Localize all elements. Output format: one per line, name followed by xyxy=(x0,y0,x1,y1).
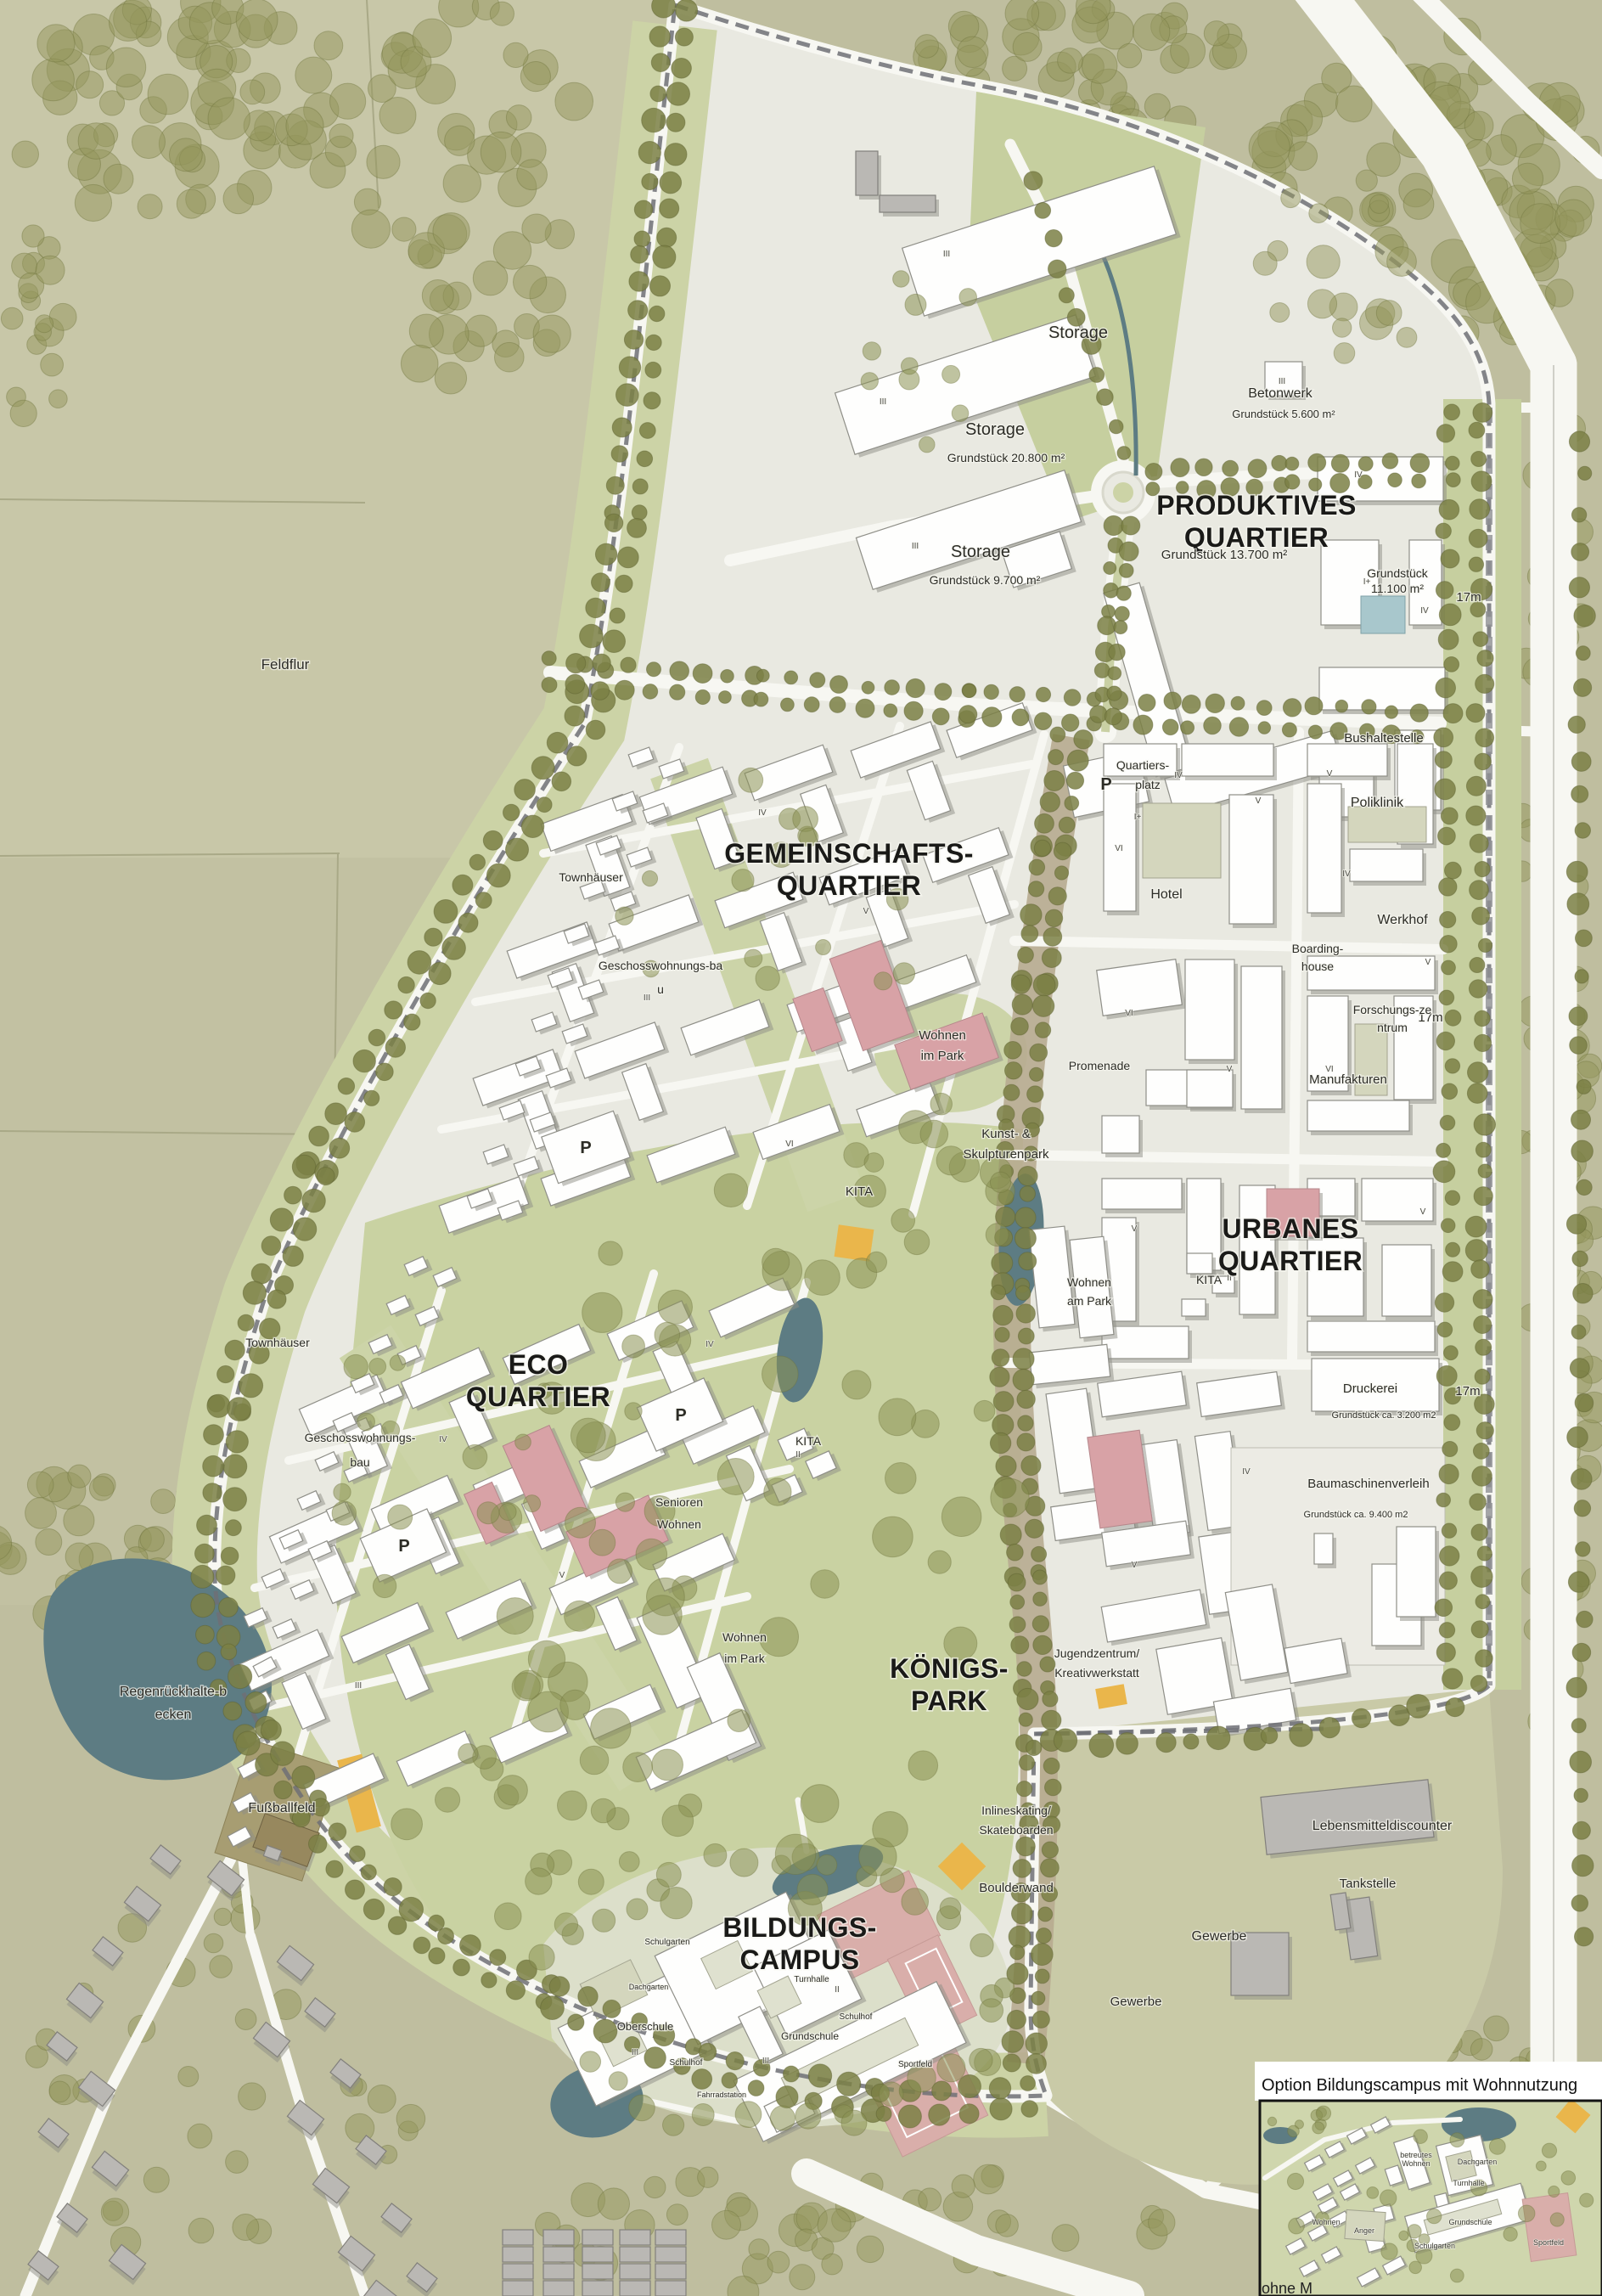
inset-label-wohnen: Wohnen xyxy=(1312,2218,1340,2226)
label-grundstueck-5600: Grundstück 5.600 m² xyxy=(1232,408,1335,420)
label-tankstelle: Tankstelle xyxy=(1340,1877,1397,1891)
label-oberschule: Oberschule xyxy=(617,2020,673,2033)
label-kita-eco: KITA xyxy=(795,1434,822,1448)
label-kita-gemeinschafts: KITA xyxy=(846,1185,873,1199)
label-boulderwand: Boulderwand xyxy=(979,1881,1054,1895)
label-regenbecken-2: ecken xyxy=(155,1708,192,1722)
label-jugendzentrum-2: Kreativwerkstatt xyxy=(1054,1666,1139,1680)
building xyxy=(1361,596,1405,633)
label-grundstueck-3200: Grundstück ca. 3.200 m2 xyxy=(1332,1410,1436,1421)
building xyxy=(1102,1116,1143,1157)
inset-scale-note: ohne M xyxy=(1262,2280,1313,2296)
inset-label-schulgarten: Schulgarten xyxy=(1414,2242,1455,2250)
floor-label: V xyxy=(1256,796,1262,806)
masterplan-map: IIIIIIIIIIIIIVIVIVIVVVVIVVIVIVIVVIIIVIVV… xyxy=(0,0,1602,2296)
label-grundstueck-11100-2: 11.100 m² xyxy=(1371,582,1424,595)
label-schulhof-2: Schulhof xyxy=(840,2012,873,2022)
label-druckerei: Druckerei xyxy=(1343,1382,1397,1396)
label-schulhof-1: Schulhof xyxy=(670,2058,703,2068)
floor-label: IV xyxy=(758,808,767,818)
floor-label: III xyxy=(912,542,919,551)
label-schulgarten: Schulgarten xyxy=(644,1938,689,1947)
label-inlineskating-2: Skateboarden xyxy=(979,1823,1053,1837)
floor-label: III xyxy=(943,250,950,259)
floor-label: II xyxy=(795,1450,801,1460)
building xyxy=(1446,2151,1476,2181)
label-geschosswohnungsbau-e-2: bau xyxy=(350,1455,369,1469)
label-geschosswohnungsbau-g-2: u xyxy=(657,982,664,996)
building xyxy=(1345,2209,1386,2241)
floor-label: V xyxy=(1327,769,1333,779)
building xyxy=(856,151,881,200)
label-kunstpark-1: Kunst- & xyxy=(981,1127,1031,1141)
building xyxy=(880,195,939,217)
floor-label: V xyxy=(1132,1561,1138,1570)
inset-label-grundschule: Grundschule xyxy=(1448,2218,1492,2226)
label-forschungszentrum-1: Forschungs-ze xyxy=(1353,1003,1432,1016)
label-grundstueck-13700: Grundstück 13.700 m² xyxy=(1161,548,1287,562)
label-feldflur: Feldflur xyxy=(261,656,310,672)
building xyxy=(1307,744,1391,780)
inset-option-bildungscampus: Option Bildungscampus mit Wohnnutzung be… xyxy=(1255,2062,1602,2296)
title-eco-1: ECO xyxy=(509,1349,569,1380)
building xyxy=(1307,1100,1413,1135)
floor-label: III xyxy=(644,993,650,1003)
inset-label-anger: Anger xyxy=(1354,2226,1374,2235)
inset-label-turnhalle: Turnhalle xyxy=(1453,2179,1484,2187)
label-kita-urbanes: KITA xyxy=(1196,1273,1223,1286)
label-quartiersplatz-1: Quartiers- xyxy=(1116,758,1170,772)
title-bildungscampus-2: CAMPUS xyxy=(739,1944,859,1975)
building xyxy=(1397,1527,1439,1621)
label-wohnen-am-park-1: Wohnen xyxy=(1067,1275,1111,1289)
building xyxy=(1362,1179,1436,1225)
label-werkhof: Werkhof xyxy=(1377,913,1428,927)
label-dachgarten: Dachgarten xyxy=(629,1983,669,1991)
floor-label: IV xyxy=(1174,771,1183,780)
building xyxy=(1102,1179,1185,1213)
building xyxy=(1241,966,1285,1113)
label-lebensmitteldiscounter: Lebensmitteldiscounter xyxy=(1313,1819,1453,1833)
building xyxy=(1229,795,1277,928)
floor-label: IV xyxy=(1420,606,1429,616)
label-bushaltestelle: Bushaltestelle xyxy=(1344,731,1423,746)
label-senioren-2: Wohnen xyxy=(657,1517,701,1531)
floor-label: IV xyxy=(1242,1467,1251,1477)
floor-label: III xyxy=(762,2057,769,2066)
label-kunstpark-2: Skulpturenpark xyxy=(964,1147,1049,1162)
label-gewerbe-1: Gewerbe xyxy=(1192,1929,1247,1944)
label-parking-4: P xyxy=(398,1537,409,1556)
title-gemeinschafts-1: GEMEINSCHAFTS- xyxy=(724,838,974,869)
floor-label: III xyxy=(880,397,886,407)
building xyxy=(1143,803,1221,878)
building xyxy=(1522,2193,1577,2262)
floor-label: V xyxy=(863,907,869,916)
label-17m-1: 17m xyxy=(1456,590,1481,605)
floor-label: III xyxy=(355,1681,362,1691)
label-wohnen-am-park-2: am Park xyxy=(1067,1294,1112,1308)
label-grundstueck-9400: Grundstück ca. 9.400 m2 xyxy=(1304,1510,1408,1520)
label-boardinghouse-2: house xyxy=(1301,959,1334,973)
floor-label: VI xyxy=(1125,1009,1133,1018)
building xyxy=(1382,1245,1435,1320)
label-parking-3: P xyxy=(675,1406,686,1425)
floor-label: VI xyxy=(1115,844,1122,853)
label-quartiersplatz-2: platz xyxy=(1135,778,1161,791)
label-jugendzentrum-1: Jugendzentrum/ xyxy=(1054,1646,1140,1660)
title-koenigspark-1: KÖNIGS- xyxy=(890,1653,1009,1684)
floor-label: V xyxy=(1132,1224,1138,1234)
title-gemeinschafts-2: QUARTIER xyxy=(777,870,921,901)
label-senioren-1: Senioren xyxy=(655,1495,703,1509)
label-gewerbe-2: Gewerbe xyxy=(1110,1995,1162,2009)
label-wohnen-im-park-2a: Wohnen xyxy=(722,1630,767,1644)
label-forschungszentrum-2: ntrum xyxy=(1377,1021,1408,1034)
label-fussballfeld: Fußballfeld xyxy=(248,1801,315,1815)
floor-label: IV xyxy=(1354,470,1363,480)
label-grundstueck-20800: Grundstück 20.800 m² xyxy=(947,451,1065,464)
label-storage-1: Storage xyxy=(1048,324,1108,342)
building xyxy=(1187,1070,1236,1111)
label-geschosswohnungsbau-e-1: Geschosswohnungs- xyxy=(305,1431,416,1444)
label-regenbecken-1: Regenrückhalte-b xyxy=(120,1685,227,1699)
label-poliklinik: Poliklinik xyxy=(1351,796,1404,810)
label-geschosswohnungsbau-g-1: Geschosswohnungs-ba xyxy=(599,959,723,972)
label-17m-3: 17m xyxy=(1455,1384,1480,1398)
building xyxy=(1182,744,1277,780)
label-hotel: Hotel xyxy=(1150,887,1182,902)
floor-label: IV xyxy=(705,1340,714,1349)
building xyxy=(1182,1299,1209,1320)
floor-label: V xyxy=(1227,1065,1233,1074)
title-urbanes-1: URBANES xyxy=(1222,1213,1358,1244)
label-grundstueck-11100-1: Grundstück xyxy=(1367,566,1429,580)
label-turnhalle: Turnhalle xyxy=(794,1975,829,1984)
floor-label: IV xyxy=(439,1435,447,1444)
inset-title: Option Bildungscampus mit Wohnnutzung xyxy=(1262,2076,1577,2095)
label-betonwerk: Betonwerk xyxy=(1248,386,1313,401)
title-produktives-1: PRODUKTIVES xyxy=(1156,490,1357,521)
label-sportfeld: Sportfeld xyxy=(898,2060,932,2069)
building xyxy=(1185,959,1238,1064)
floor-label: III xyxy=(1279,377,1285,386)
inset-label-dachgarten: Dachgarten xyxy=(1458,2158,1498,2166)
floor-label: II xyxy=(835,1985,840,1995)
title-urbanes-2: QUARTIER xyxy=(1218,1246,1363,1276)
floor-label: VI xyxy=(785,1140,793,1149)
label-wohnen-im-park-1a: Wohnen xyxy=(919,1028,966,1043)
label-grundschule: Grundschule xyxy=(781,2030,839,2042)
inset-label-betreutes-1: betreutes xyxy=(1400,2151,1432,2159)
floor-label: III xyxy=(632,2048,638,2057)
label-boardinghouse-1: Boarding- xyxy=(1292,942,1344,955)
label-grundstueck-9700: Grundstück 9.700 m² xyxy=(930,573,1041,587)
title-bildungscampus-1: BILDUNGS- xyxy=(722,1912,876,1943)
building xyxy=(1348,807,1426,842)
building xyxy=(1307,784,1345,917)
building xyxy=(1350,849,1426,886)
floor-label: IV xyxy=(1342,869,1351,879)
label-promenade: Promenade xyxy=(1069,1059,1131,1072)
building xyxy=(1314,1533,1336,1568)
label-baumaschinenverleih: Baumaschinenverleih xyxy=(1307,1477,1429,1491)
building xyxy=(1307,1321,1438,1356)
label-fahrradstation: Fahrradstation xyxy=(697,2091,746,2099)
floor-label: V xyxy=(559,1571,565,1580)
inset-label-sportfeld: Sportfeld xyxy=(1533,2238,1564,2247)
inset-label-betreutes-2: Wohnen xyxy=(1402,2159,1430,2168)
label-townhaeuser-2: Townhäuser xyxy=(245,1336,310,1349)
title-eco-2: QUARTIER xyxy=(466,1382,610,1412)
floor-label: I+ xyxy=(1134,813,1142,822)
floor-label: V xyxy=(1420,1207,1426,1217)
title-koenigspark-2: PARK xyxy=(911,1685,987,1716)
label-parking-1: P xyxy=(1100,775,1111,794)
label-parking-2: P xyxy=(580,1139,591,1157)
floor-label: V xyxy=(1425,958,1431,967)
label-inlineskating-1: Inlineskating/ xyxy=(981,1804,1051,1817)
label-storage-3: Storage xyxy=(951,543,1010,561)
label-wohnen-im-park-1b: im Park xyxy=(921,1049,964,1063)
label-wohnen-im-park-2b: im Park xyxy=(724,1652,765,1665)
label-manufakturen: Manufakturen xyxy=(1309,1072,1387,1087)
label-storage-2: Storage xyxy=(965,420,1025,439)
label-townhaeuser-1: Townhäuser xyxy=(559,870,623,884)
